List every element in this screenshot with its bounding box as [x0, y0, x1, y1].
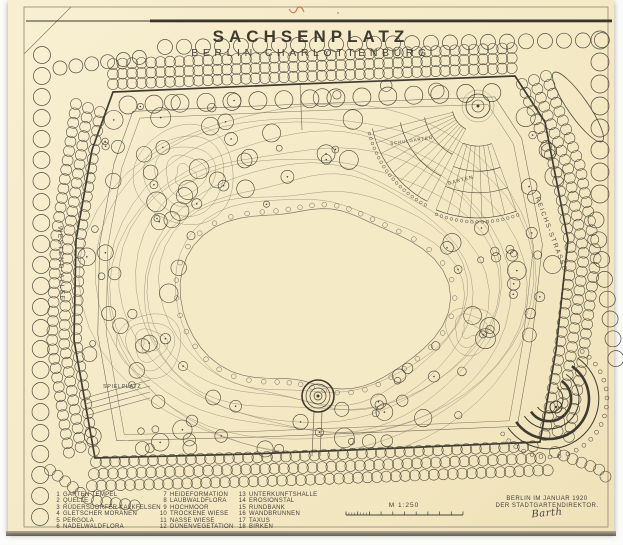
legend-item-number: 12 — [158, 524, 167, 530]
imprint: BERLIN IM JANUAR 1920 DER STADTGARTENDIR… — [480, 496, 614, 518]
legend-item-label: DÜNENVEGETATION — [170, 524, 234, 530]
paper-bottom-edge — [6, 531, 616, 536]
imprint-city-date: BERLIN IM JANUAR 1920 — [480, 496, 614, 503]
legend-item: 18BIRKEN — [237, 524, 317, 530]
legend-item-label: BIRKEN — [249, 524, 273, 530]
legend-item-number: 6 — [51, 524, 60, 530]
legend-item-label: NADELWALDFLORA — [63, 524, 124, 530]
legend-item-number: 18 — [237, 524, 246, 530]
legend-item: 6NADELWALDFLORA — [51, 524, 161, 530]
legend-column: 1GARTEN TEMPEL2QUELLE3RÜDERSDORFER KALKF… — [51, 492, 161, 530]
legend-column: 7HEIDEFORMATION8LAUBWALDFLORA9HOCHMOOR10… — [158, 492, 234, 530]
legend-column: 13UNTERKUNFTSHALLE14EROSIONSTAL15RUNDBAN… — [237, 492, 317, 530]
scale-label: M 1:250 — [362, 502, 446, 509]
legend-item: 12DÜNENVEGETATION — [158, 524, 234, 530]
legend: 1GARTEN TEMPEL2QUELLE3RÜDERSDORFER KALKF… — [0, 0, 623, 545]
scanned-plan-page: SACHSENPLATZ BERLIN·CHARLOTTENBURG WESTE… — [0, 0, 623, 545]
